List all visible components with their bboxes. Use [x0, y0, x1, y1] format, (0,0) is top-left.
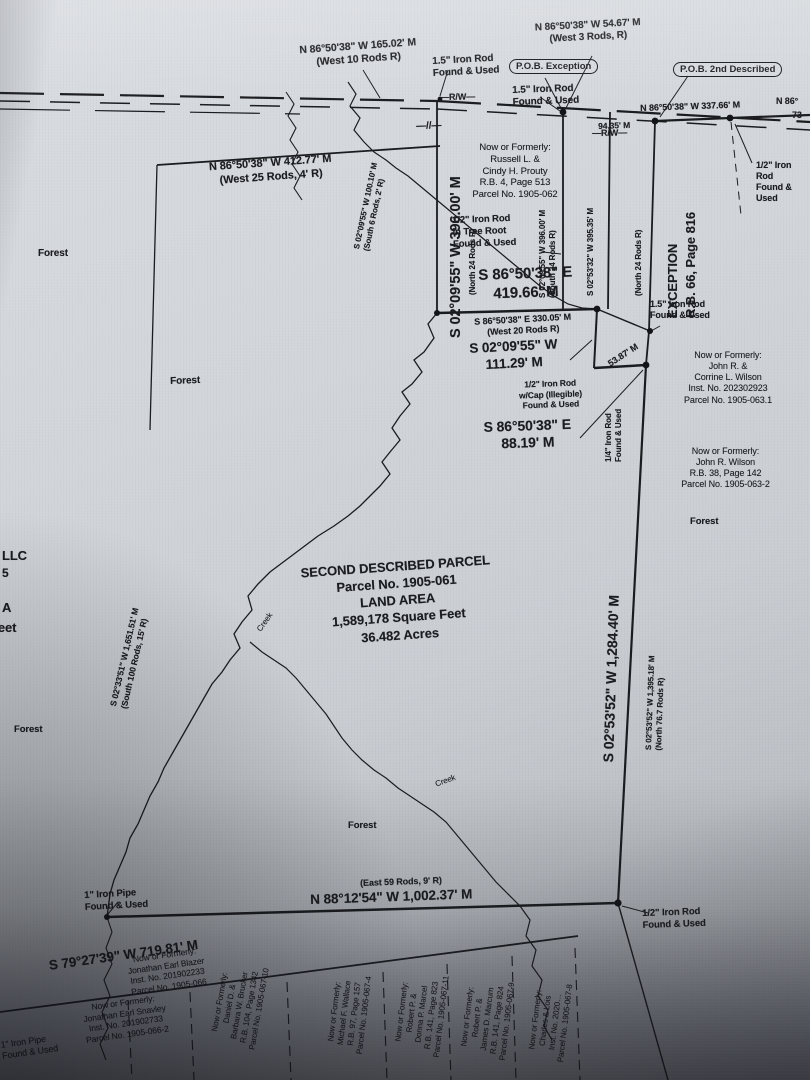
- monument-note-rod15-a: 1.5" Iron Rod Found & Used: [432, 53, 500, 81]
- forest-label-4: Forest: [14, 724, 42, 736]
- edge-fragment-feet: Feet: [0, 620, 16, 636]
- owner-block-wilson2: Now or Formerly: John R. Wilson R.B. 38,…: [648, 446, 803, 491]
- forest-label-2: Forest: [170, 375, 200, 388]
- forest-label-5: Forest: [348, 820, 376, 832]
- survey-plat-photo: N 86°50'38" W 165.02' M (West 10 Rods R)…: [0, 0, 810, 1080]
- bearing-label-9435: 94.35' M: [598, 120, 630, 132]
- bearing-label-11129: S 02°09'55" W 111.29' M: [448, 335, 580, 375]
- edge-fragment-a: A: [2, 600, 11, 616]
- monument-note-pipe1: 1" Iron Pipe Found & Used: [84, 887, 148, 914]
- owner-block-marcum: Now or Formerly: Robert P. & James D. Ma…: [458, 977, 517, 1061]
- edge-fragment-5: 5: [2, 566, 9, 581]
- monument-note-rod12-edge: 1/2" Iron Rod Found & Used: [756, 160, 810, 205]
- monument-note-rod15-b: 1.5" Iron Rod Found & Used: [512, 83, 579, 110]
- pob-2nd-described-badge: P.O.B. 2nd Described: [673, 62, 782, 77]
- edge-fragment-73: 73: [792, 110, 802, 121]
- owner-block-marcel: Now or Formerly: Robert P. & Donna P. Ma…: [392, 970, 452, 1058]
- line-break-marker: —//—: [416, 120, 442, 133]
- exception-record-note: (North 24 Rods R): [634, 230, 644, 296]
- bearing-label-139518: S 02°53'52" W 1,395.18' M (North 76.7 Ro…: [644, 655, 667, 750]
- monument-note-rod14: 1/4" Iron Rod Found & Used: [604, 409, 624, 462]
- monument-note-rod12-bottom: 1/2" Iron Rod Found & Used: [642, 906, 706, 932]
- monument-note-rod12-cap: 1/2" Iron Rod w/Cap (Illegible) Found & …: [505, 377, 596, 412]
- edge-fragment-llc: LLC: [2, 548, 27, 564]
- edge-fragment-n86: N 86°: [776, 96, 798, 107]
- forest-label-3: Forest: [690, 516, 718, 528]
- owner-block-wilson1: Now or Formerly: John R. & Corrine L. Wi…: [648, 350, 808, 406]
- bearing-label-8819: S 86°50'38" E 88.19' M: [452, 415, 603, 455]
- road-rw-marker-1: —R/W—: [440, 91, 475, 103]
- bearing-label-39600-big: S 02°09'55" W 396.00' M: [448, 176, 466, 338]
- bearing-label-41966: S 86°50'38" E 419.66' M: [445, 262, 606, 305]
- monument-note-rod15-c: 1.5" Iron Rod Found & Used: [650, 299, 710, 321]
- owner-block-prouty: Now or Formerly: Russell L. & Cindy H. P…: [455, 142, 575, 201]
- forest-label-1: Forest: [38, 248, 68, 260]
- pob-exception-badge: P.O.B. Exception: [509, 59, 598, 74]
